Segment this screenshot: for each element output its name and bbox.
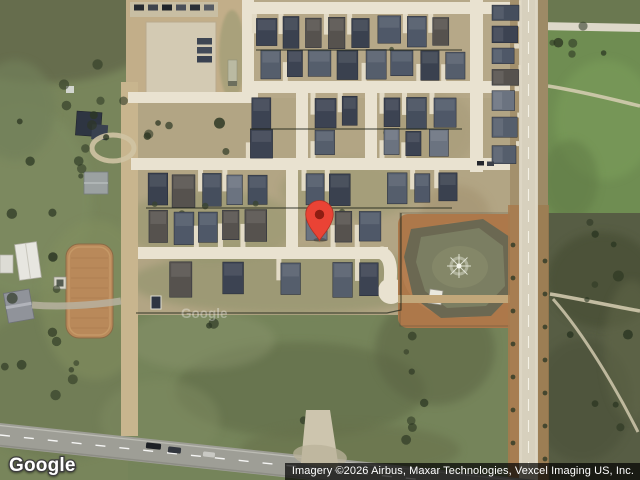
farm-house <box>3 289 34 323</box>
pond <box>398 213 524 328</box>
map-attribution: Imagery ©2026 Airbus, Maxar Technologies… <box>285 463 640 480</box>
google-logo-text: Google <box>9 455 76 476</box>
dirt-path <box>538 26 640 28</box>
google-logo[interactable]: Google <box>6 452 98 478</box>
satellite-imagery: Google <box>0 0 640 480</box>
pin-inner-dot <box>315 210 324 219</box>
white-barn <box>15 242 42 281</box>
map-watermark: Google <box>181 306 228 321</box>
satellite-map[interactable]: Google Google Imagery ©2026 Airbus, Maxa… <box>0 0 640 480</box>
